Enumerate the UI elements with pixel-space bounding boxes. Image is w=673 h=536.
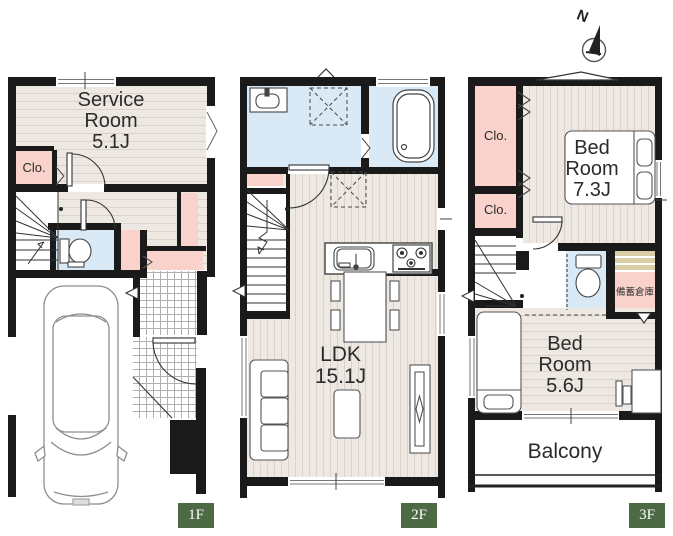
bedroom-second-label: Bed Room 5.6J <box>505 334 625 397</box>
staircase-2f-area <box>247 186 286 311</box>
storage-label: 備蓄倉庫 <box>613 287 657 298</box>
balcony-railing <box>468 475 662 486</box>
floor-tag-1f: 1F <box>178 503 214 528</box>
staircase-3f <box>462 240 524 306</box>
service-room-line2: Room <box>15 111 207 132</box>
entrance-porch-tile <box>133 337 197 418</box>
closet-strip-1f-c <box>181 193 198 247</box>
bedroom-second-line3: 5.6J <box>505 376 625 397</box>
shelf-3f <box>615 251 655 272</box>
toilet-room-1f <box>56 230 116 272</box>
floor-tag-2f: 2F <box>401 503 437 528</box>
service-room-line1: Service <box>15 90 207 111</box>
ldk-line2: 15.1J <box>283 366 398 388</box>
bathroom-2f <box>369 86 438 167</box>
vent-icon <box>318 69 334 77</box>
bedroom-main-label: Bed Room 7.3J <box>538 138 646 201</box>
floor-tag-3f: 3F <box>629 503 665 528</box>
bedroom-second-line1: Bed <box>505 334 625 355</box>
toilet-room-3f <box>566 251 606 312</box>
ldk-label: LDK 15.1J <box>283 344 398 388</box>
bedroom-second-line2: Room <box>505 355 625 376</box>
shelf-2f <box>247 167 283 186</box>
closet-strip-1f-a <box>118 230 140 272</box>
north-label: N <box>574 7 590 27</box>
north-arrow-icon <box>583 25 606 62</box>
bedroom-main-line3: 7.3J <box>538 180 646 201</box>
service-room-label: Service Room 5.1J <box>15 90 207 153</box>
bedroom-main-line1: Bed <box>538 138 646 159</box>
service-room-line3: 5.1J <box>15 132 207 153</box>
closet-strip-1f-b <box>140 251 203 270</box>
washroom-2f <box>247 86 361 167</box>
ldk-line1: LDK <box>283 344 398 366</box>
entrance-hall-tile <box>140 271 197 335</box>
closet-1f-label: Clo. <box>15 161 53 175</box>
staircase-1f-area <box>15 192 58 270</box>
closet-3f-2-label: Clo. <box>474 203 517 217</box>
closet-3f-1-label: Clo. <box>474 129 517 143</box>
car-icon <box>35 286 127 505</box>
floor-plan-canvas: Service Room 5.1J Clo. LDK 15.1J Clo. Cl… <box>0 0 673 536</box>
bedroom-main-line2: Room <box>538 159 646 180</box>
balcony-label: Balcony <box>490 441 640 463</box>
awning-window-icon <box>536 72 619 80</box>
